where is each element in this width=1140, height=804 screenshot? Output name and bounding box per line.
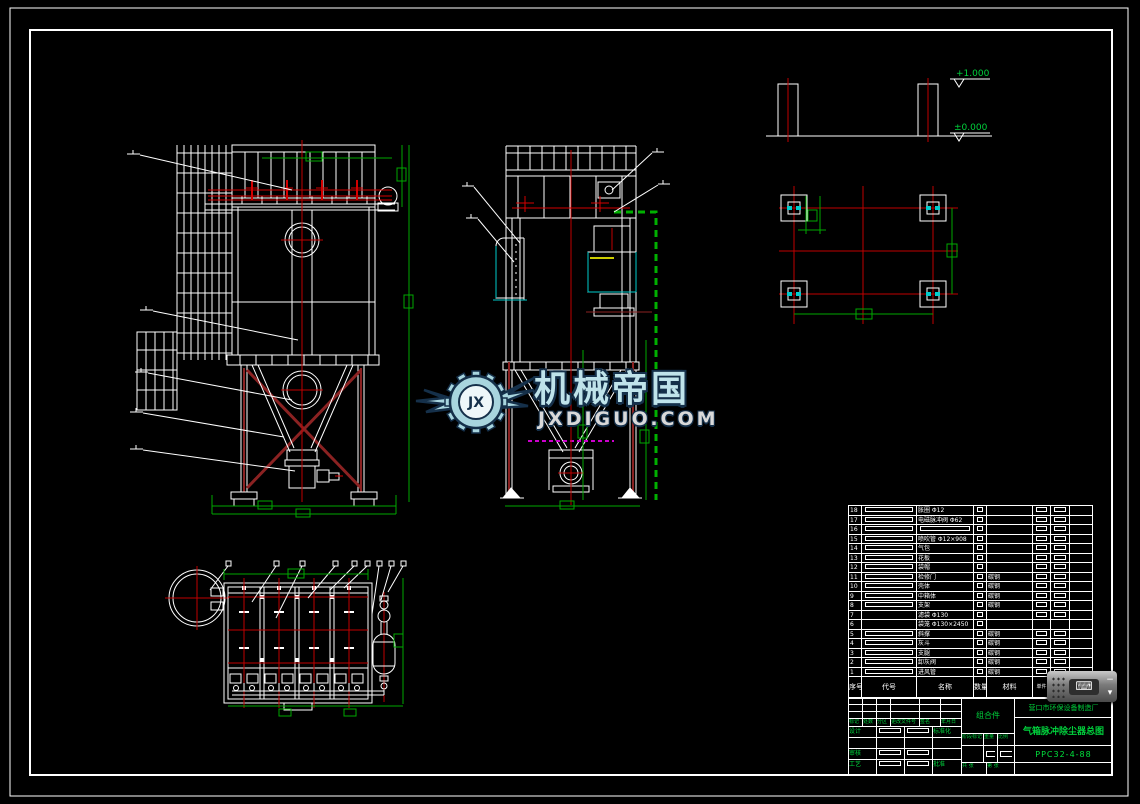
bom-cell: 9 [849, 592, 862, 602]
watermark-site-text: JXDIGUO.COM [538, 408, 719, 430]
bom-cell [1033, 573, 1051, 583]
blank-cell [920, 705, 941, 712]
bom-cell [974, 563, 987, 573]
bom-row: 5斜撑碳钢 [849, 630, 1092, 640]
bom-cell [1033, 658, 1051, 668]
bom-cell: 碳钢 [987, 601, 1033, 611]
bom-cell [987, 554, 1033, 564]
bom-cell [1033, 639, 1051, 649]
blank-cell [941, 712, 961, 719]
bom-cell: 袋帽 [917, 563, 974, 573]
bom-cell: 碳钢 [987, 582, 1033, 592]
side-view [462, 146, 670, 509]
bom-cell [974, 544, 987, 554]
bom-cell [862, 506, 917, 516]
bom-cell [974, 525, 987, 535]
blank-cell [941, 705, 961, 712]
bom-row: 11检修门碳钢 [849, 573, 1092, 583]
bom-cell [1070, 649, 1092, 659]
plan-body [224, 583, 372, 703]
bom-row: 12袋帽 [849, 563, 1092, 573]
bom-row: 6袋笼 Φ130×2450 [849, 620, 1092, 630]
blank-cell [849, 712, 863, 719]
bom-cell [1051, 525, 1070, 535]
bom-cell [1051, 630, 1070, 640]
bom-cell [1033, 630, 1051, 640]
bom-cell: 4 [849, 639, 862, 649]
signature-cell [905, 760, 933, 776]
blank-cell [863, 698, 877, 705]
bom-cell [987, 525, 1033, 535]
bom-cell [974, 630, 987, 640]
bom-cell [1033, 601, 1051, 611]
bom-cell: 碳钢 [987, 649, 1033, 659]
bom-cell: 胀圈 Φ12 [917, 506, 974, 516]
outlet-duct [586, 226, 652, 316]
bom-cell [1051, 658, 1070, 668]
bom-cell [1051, 649, 1070, 659]
bom-cell [862, 582, 917, 592]
bom-cell: 卸灰阀 [917, 658, 974, 668]
revision-header-cell: 年月日 [941, 719, 961, 727]
bom-row: 13花板 [849, 554, 1092, 564]
bom-cell [974, 601, 987, 611]
bom-row: 18胀圈 Φ12 [849, 506, 1092, 516]
bom-cell [1051, 639, 1070, 649]
signature-cell: 审核 [849, 749, 877, 760]
blank-cell [863, 712, 877, 719]
bom-row: 15喷吹管 Φ12×908 [849, 535, 1092, 545]
bom-row: 4灰斗碳钢 [849, 639, 1092, 649]
bom-cell [987, 611, 1033, 621]
signature-cell: 工艺 [849, 760, 877, 776]
elevation-mark-base: ±0.000 [950, 123, 990, 141]
drag-handle-icon[interactable] [1051, 676, 1067, 698]
blank-cell [877, 712, 891, 719]
stage-block: 组合件 阶段标记重量比例 共 张第 张 [962, 697, 1015, 775]
bom-cell: 碳钢 [987, 592, 1033, 602]
bom-cell: 17 [849, 516, 862, 526]
revision-header-cell: 标记 [849, 719, 863, 727]
bom-row: 17电磁脉冲阀 Φ62 [849, 516, 1092, 526]
bom-cell [1051, 592, 1070, 602]
bom-cell: 碳钢 [987, 573, 1033, 583]
bom-cell [862, 535, 917, 545]
bom-cell [974, 668, 987, 678]
revision-header-cell: 处数 [863, 719, 877, 727]
drawing-title: 气箱脉冲除尘器总图 [1015, 718, 1112, 746]
bom-cell: 16 [849, 525, 862, 535]
bom-cell [1070, 620, 1092, 630]
bom-cell [987, 516, 1033, 526]
svg-text:JX: JX [467, 395, 484, 411]
bom-row: 3支腿碳钢 [849, 649, 1092, 659]
bom-cell [1051, 573, 1070, 583]
inlet-circle [165, 566, 229, 630]
bom-cell: 14 [849, 544, 862, 554]
bom-cell [987, 506, 1033, 516]
bom-cell [987, 563, 1033, 573]
bom-cell [1070, 592, 1092, 602]
bom-cell [862, 563, 917, 573]
bom-cell: 碳钢 [987, 639, 1033, 649]
blank-cell [920, 712, 941, 719]
blank-cell [891, 705, 920, 712]
blank-cell [891, 712, 920, 719]
bom-cell [862, 630, 917, 640]
signature-cell [877, 727, 905, 738]
bom-cell: 气包 [917, 544, 974, 554]
bom-cell: 壳体 [917, 582, 974, 592]
bom-cell [1033, 525, 1051, 535]
blank-cell [891, 698, 920, 705]
bom-cell [974, 658, 987, 668]
signature-cell [877, 738, 905, 749]
bom-cell [1070, 611, 1092, 621]
bom-cell [974, 639, 987, 649]
bom-cell [1070, 573, 1092, 583]
bom-header-cell: 序号 [849, 677, 862, 698]
support-frame [231, 365, 377, 506]
blank-cell [877, 705, 891, 712]
bom-cell [987, 544, 1033, 554]
bom-cell [1070, 506, 1092, 516]
bom-cell [987, 620, 1033, 630]
signature-row [849, 738, 961, 749]
bom-cell [1051, 563, 1070, 573]
drawing-number: PPC32-4-88 [1015, 746, 1112, 763]
bom-cell [862, 544, 917, 554]
signature-block: 标记处数分区更改文件号签名年月日 设计标准化审核工艺批准 [848, 697, 962, 775]
signature-cell [877, 760, 905, 776]
plan-view [165, 561, 406, 716]
bom-cell: 中箱体 [917, 592, 974, 602]
bom-cell [862, 649, 917, 659]
watermark-brand-text: 机械帝国 [534, 360, 690, 412]
bom-cell [1033, 592, 1051, 602]
signature-cell [849, 738, 877, 749]
bom-cell: 灰斗 [917, 639, 974, 649]
bom-cell: 花板 [917, 554, 974, 564]
bom-cell [974, 516, 987, 526]
bom-cell: 7 [849, 611, 862, 621]
front-view [127, 140, 413, 517]
signature-cell [933, 749, 961, 760]
bom-row: 7滤袋 Φ130 [849, 611, 1092, 621]
bom-cell [974, 506, 987, 516]
bom-cell [862, 620, 917, 630]
title-block: 18胀圈 Φ1217电磁脉冲阀 Φ621615喷吹管 Φ12×90814气包13… [848, 505, 1113, 775]
stage-label-cell: 重量 [984, 734, 998, 746]
bom-cell [862, 592, 917, 602]
bom-cell [1051, 544, 1070, 554]
bom-cell [1051, 516, 1070, 526]
bom-cell [1033, 535, 1051, 545]
bom-cell [974, 554, 987, 564]
bom-cell [974, 611, 987, 621]
blank-cell [877, 698, 891, 705]
bom-cell [1033, 544, 1051, 554]
bom-cell [1070, 525, 1092, 535]
bom-cell [862, 658, 917, 668]
drawing-info-block: 营口市环保设备制造厂 气箱脉冲除尘器总图 PPC32-4-88 [1015, 697, 1113, 775]
bom-row: 8支架碳钢 [849, 601, 1092, 611]
bom-cell: 碳钢 [987, 668, 1033, 678]
blank-cell [849, 698, 863, 705]
blank-cell [849, 705, 863, 712]
expand-button[interactable]: ▾ [1104, 689, 1116, 698]
bom-cell: 袋笼 Φ130×2450 [917, 620, 974, 630]
bom-cell [1033, 611, 1051, 621]
sheet-label-cell: 共 张 [962, 763, 987, 776]
signature-cell: 标准化 [933, 727, 961, 738]
bom-cell [974, 620, 987, 630]
bom-cell [862, 554, 917, 564]
blank-row [849, 712, 961, 719]
cad-drawing-page: +1.000 ±0.000 [0, 0, 1140, 804]
bom-cell [862, 668, 917, 678]
bom-cell [862, 573, 917, 583]
bom-cell: 6 [849, 620, 862, 630]
signature-cell: 批准 [933, 760, 961, 776]
bom-cell [1070, 516, 1092, 526]
bom-cell: 10 [849, 582, 862, 592]
bom-cell [974, 573, 987, 583]
blank-row [849, 698, 961, 705]
bom-cell [974, 582, 987, 592]
bom-cell: 3 [849, 649, 862, 659]
ladder-cage [137, 145, 232, 410]
stage-value-row [962, 746, 1014, 763]
bom-cell: 18 [849, 506, 862, 516]
bom-cell [1070, 535, 1092, 545]
bom-header-cell: 材料 [987, 677, 1033, 698]
signature-cell [905, 727, 933, 738]
bom-cell [1070, 563, 1092, 573]
bom-cell [1070, 601, 1092, 611]
bom-cell: 碳钢 [987, 630, 1033, 640]
bom-header-cell: 名称 [917, 677, 974, 698]
bom-cell [1033, 620, 1051, 630]
bom-row: 9中箱体碳钢 [849, 592, 1092, 602]
foundation-elevation: +1.000 ±0.000 [766, 69, 992, 142]
bom-cell [974, 649, 987, 659]
bom-rows: 18胀圈 Φ1217电磁脉冲阀 Φ621615喷吹管 Φ12×90814气包13… [849, 506, 1092, 677]
bom-cell [1033, 563, 1051, 573]
bom-header-cell: 代号 [862, 677, 917, 698]
bom-cell [974, 535, 987, 545]
blank-cell [920, 698, 941, 705]
svg-text:+1.000: +1.000 [956, 69, 990, 79]
touch-keyboard-widget[interactable]: ⌨ − ▾ [1047, 671, 1117, 702]
sheet-labels-row: 共 张第 张 [962, 763, 1014, 776]
bom-cell: 11 [849, 573, 862, 583]
scale-cell [998, 746, 1014, 762]
bom-cell: 2 [849, 658, 862, 668]
bom-cell: 滤袋 Φ130 [917, 611, 974, 621]
bom-cell [1051, 601, 1070, 611]
bom-cell: 支腿 [917, 649, 974, 659]
bom-row: 10壳体碳钢 [849, 582, 1092, 592]
bom-cell [862, 516, 917, 526]
weight-cell [984, 746, 998, 762]
bom-cell: 12 [849, 563, 862, 573]
bom-cell: 斜撑 [917, 630, 974, 640]
stage-label-cell: 比例 [998, 734, 1014, 746]
bom-cell [1033, 516, 1051, 526]
bom-cell [1033, 649, 1051, 659]
sheet-label-cell: 第 张 [987, 763, 1014, 776]
bom-cell [1070, 658, 1092, 668]
bom-cell: 支架 [917, 601, 974, 611]
bom-row: 2卸灰阀碳钢 [849, 658, 1092, 668]
signature-row: 审核 [849, 749, 961, 760]
filter-body [227, 207, 379, 365]
plan-pulse-valves [230, 674, 384, 710]
signature-row: 工艺批准 [849, 760, 961, 776]
bom-cell [1070, 630, 1092, 640]
bom-cell [1051, 611, 1070, 621]
blank-row [849, 705, 961, 712]
signature-cell [877, 749, 905, 760]
revision-header-cell: 更改文件号 [891, 719, 920, 727]
bom-cell: 13 [849, 554, 862, 564]
signature-cell [905, 749, 933, 760]
plan-callouts [210, 561, 406, 618]
bom-cell [1051, 506, 1070, 516]
stage-label-cell: 阶段标记 [962, 734, 984, 746]
foundation-plan [779, 186, 958, 324]
signature-row: 设计标准化 [849, 727, 961, 738]
signature-cell [905, 738, 933, 749]
gear-wings-icon: JX [412, 352, 537, 452]
svg-text:±0.000: ±0.000 [954, 123, 988, 133]
bom-cell: 15 [849, 535, 862, 545]
inlet-duct [493, 238, 527, 300]
signature-rows: 设计标准化审核工艺批准 [849, 727, 961, 776]
bom-cell [1051, 582, 1070, 592]
bom-cell [1051, 535, 1070, 545]
bom-cell [1070, 639, 1092, 649]
bom-cell: 进风管 [917, 668, 974, 678]
discharge-valve [285, 450, 343, 488]
blank-cell [1015, 763, 1112, 775]
bom-cell [974, 592, 987, 602]
revision-header-row: 标记处数分区更改文件号签名年月日 [849, 719, 961, 727]
signature-cell: 设计 [849, 727, 877, 738]
stage-cell [962, 746, 984, 762]
bom-cell [1033, 554, 1051, 564]
bom-table: 18胀圈 Φ1217电磁脉冲阀 Φ621615喷吹管 Φ12×90814气包13… [848, 505, 1093, 699]
bom-header-cell: 数量 [974, 677, 987, 698]
watermark-logo: JX 机械帝国 JXDIGUO.COM [412, 352, 742, 452]
pulse-valve-row [208, 180, 392, 200]
blank-cell [941, 698, 961, 705]
plan-centerlines [228, 578, 384, 708]
stage-labels-row: 阶段标记重量比例 [962, 734, 1014, 746]
bom-cell [1070, 582, 1092, 592]
assembly-label: 组合件 [962, 698, 1014, 734]
revision-header-cell: 签名 [920, 719, 941, 727]
bom-cell [1051, 620, 1070, 630]
bom-cell [862, 639, 917, 649]
bom-cell: 喷吹管 Φ12×908 [917, 535, 974, 545]
bom-cell [1070, 544, 1092, 554]
bom-cell [917, 525, 974, 535]
minimize-button[interactable]: − [1104, 676, 1116, 685]
signature-cell [933, 738, 961, 749]
bom-cell: 检修门 [917, 573, 974, 583]
bom-cell: 8 [849, 601, 862, 611]
bom-cell [862, 525, 917, 535]
keyboard-icon[interactable]: ⌨ [1069, 679, 1099, 695]
bom-cell [1033, 506, 1051, 516]
bom-cell: 1 [849, 668, 862, 678]
gear-icon: JX [445, 371, 507, 433]
bom-row: 14气包 [849, 544, 1092, 554]
bom-cell: 5 [849, 630, 862, 640]
bom-cell: 电磁脉冲阀 Φ62 [917, 516, 974, 526]
blank-cell [863, 705, 877, 712]
bom-cell [1051, 554, 1070, 564]
bom-row: 16 [849, 525, 1092, 535]
elevation-mark-top: +1.000 [950, 69, 990, 87]
revision-header-cell: 分区 [877, 719, 891, 727]
bom-cell: 碳钢 [987, 658, 1033, 668]
bom-cell [862, 611, 917, 621]
bom-cell [862, 601, 917, 611]
bom-cell [1033, 582, 1051, 592]
bom-cell [1070, 554, 1092, 564]
bom-cell [987, 535, 1033, 545]
